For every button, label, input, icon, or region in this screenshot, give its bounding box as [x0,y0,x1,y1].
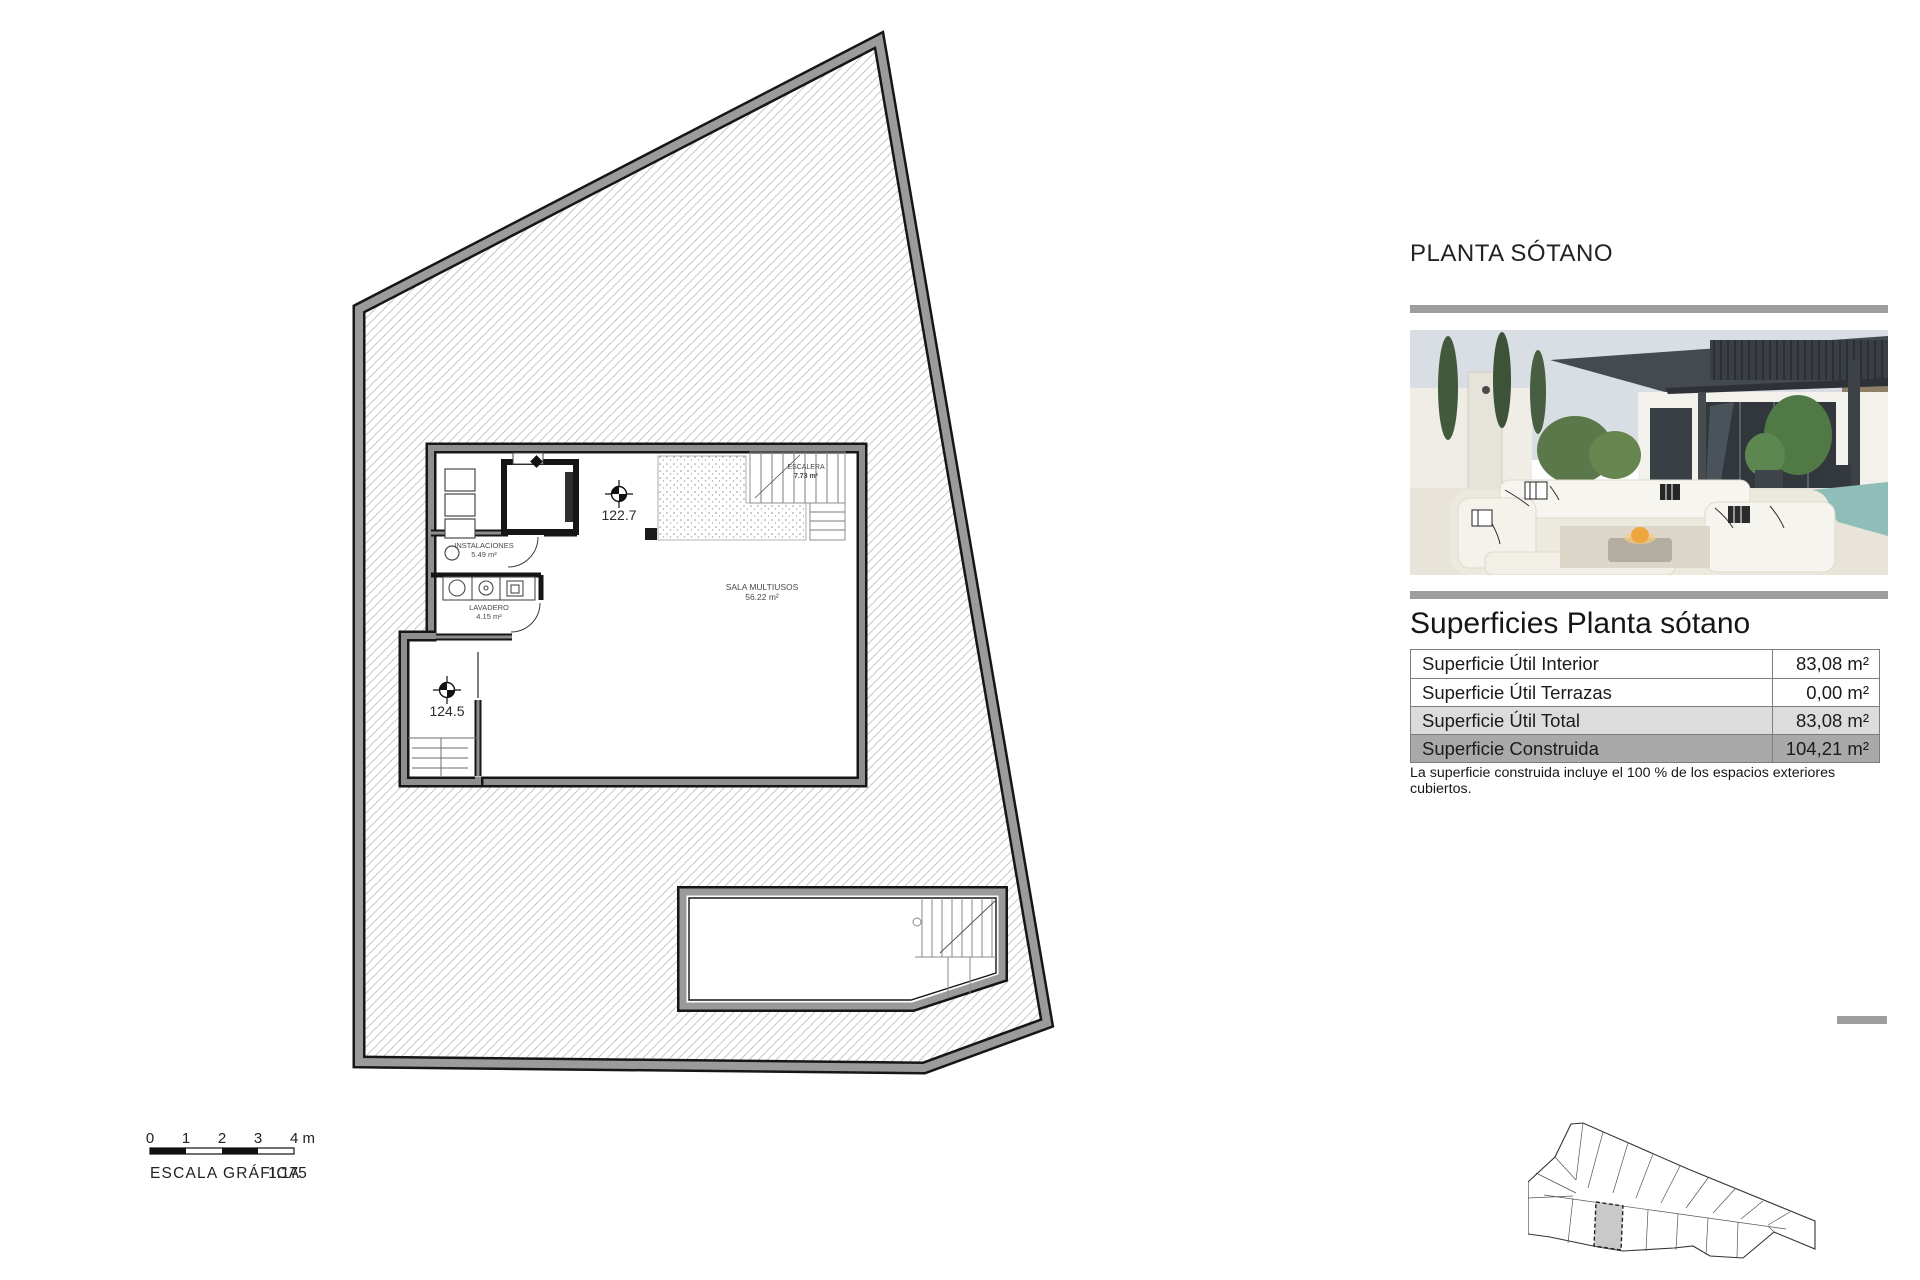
shower-room [504,453,576,532]
table-row: Superficie Útil Total 83,08 m² [1411,706,1879,734]
row-value: 104,21 m² [1773,735,1879,762]
room-label-instalaciones: INSTALACIONES [454,541,513,550]
row-value: 0,00 m² [1773,679,1879,706]
lavadero-fixtures [443,577,535,600]
divider-bar-small [1837,1016,1887,1024]
site-plan: 122.7 124.5 INSTALACIONES 5.49 m² LAVADE… [0,0,1100,1280]
plan-sheet-page: 122.7 124.5 INSTALACIONES 5.49 m² LAVADE… [0,0,1920,1280]
row-label: Superficie Útil Terrazas [1411,679,1773,706]
location-minimap [1528,1098,1860,1270]
scale-tick-1: 1 [182,1130,190,1147]
page-title: PLANTA SÓTANO [1410,240,1890,268]
pool-structure [683,892,1002,1006]
column [645,528,657,540]
svg-text:5.49 m²: 5.49 m² [471,550,497,559]
room-label-escalera: ESCALERA [787,464,825,471]
divider-bar-bottom [1410,591,1888,599]
row-label: Superficie Construida [1411,735,1773,762]
svg-text:7.73 m²: 7.73 m² [794,473,819,480]
divider-bar-top [1410,305,1888,313]
scale-tick-0: 0 [146,1130,154,1147]
building-floorplan [404,448,862,782]
room-label-sala: SALA MULTIUSOS [726,582,799,592]
scale-tick-2: 2 [218,1130,226,1147]
sunken-seating [1450,480,1835,575]
highlighted-lot [1594,1202,1623,1250]
row-label: Superficie Útil Interior [1411,650,1773,678]
scale-end-label: 4 m [290,1130,315,1147]
room-label-lavadero: LAVADERO [469,603,509,612]
row-value: 83,08 m² [1773,707,1879,734]
scale-bar: 0 1 2 3 4 m ESCALA GRÁFICA 1:175 [146,1130,315,1182]
villa-photo [1410,330,1888,575]
svg-text:4.15 m²: 4.15 m² [476,612,502,621]
table-row: Superficie Útil Interior 83,08 m² [1411,650,1879,678]
table-row: Superficie Construida 104,21 m² [1411,734,1879,762]
scale-tick-3: 3 [254,1130,262,1147]
svg-text:56.22 m²: 56.22 m² [745,592,779,602]
row-label: Superficie Útil Total [1411,707,1773,734]
surfaces-title: Superficies Planta sótano [1410,607,1890,641]
row-value: 83,08 m² [1773,650,1879,678]
level-value: 122.7 [601,507,636,523]
level-value: 124.5 [429,703,464,719]
scale-ratio: 1:175 [268,1165,307,1182]
table-row: Superficie Útil Terrazas 0,00 m² [1411,678,1879,706]
surfaces-note: La superficie construida incluye el 100 … [1410,765,1890,797]
surfaces-table: Superficie Útil Interior 83,08 m² Superf… [1410,649,1880,763]
